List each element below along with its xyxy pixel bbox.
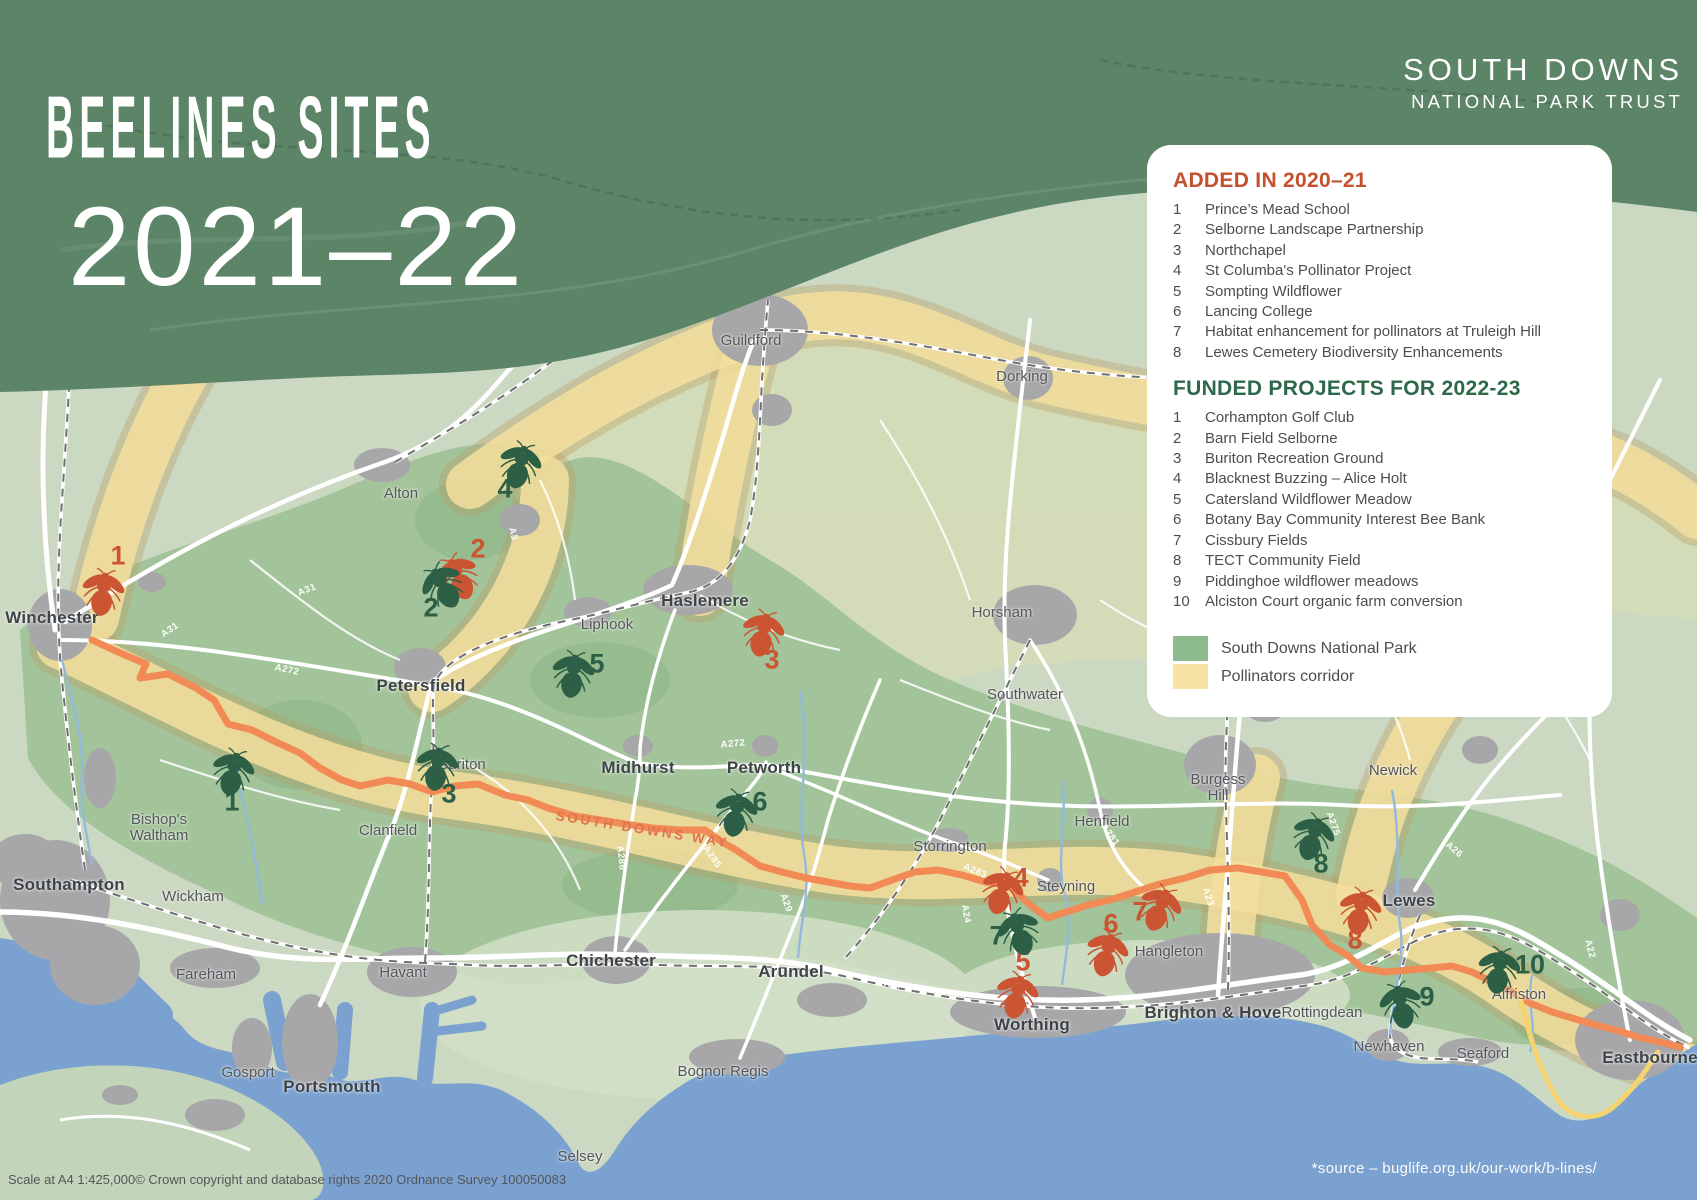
item-number: 3 [1173, 449, 1205, 469]
brand-line2: NATIONAL PARK TRUST [1403, 91, 1683, 113]
list-item: 5Sompting Wildflower [1173, 282, 1594, 302]
list-item: 3Northchapel [1173, 241, 1594, 261]
list-item: 6Lancing College [1173, 302, 1594, 322]
brand-logo: SOUTH DOWNS NATIONAL PARK TRUST [1403, 52, 1683, 113]
map-legend: South Downs National ParkPollinators cor… [1173, 636, 1594, 689]
list-item: 1Corhampton Golf Club [1173, 408, 1594, 428]
item-text: Blacknest Buzzing – Alice Holt [1205, 469, 1407, 489]
item-number: 1 [1173, 408, 1205, 428]
section-heading-funded: FUNDED PROJECTS FOR 2022-23 [1173, 377, 1594, 401]
list-item: 2Selborne Landscape Partnership [1173, 220, 1594, 240]
legend-label: Pollinators corridor [1221, 668, 1354, 686]
item-number: 6 [1173, 510, 1205, 530]
list-item: 5Catersland Wildflower Meadow [1173, 490, 1594, 510]
legend-swatch-pollinators-corridor [1173, 664, 1208, 689]
item-text: Catersland Wildflower Meadow [1205, 490, 1412, 510]
item-number: 6 [1173, 302, 1205, 322]
item-text: Botany Bay Community Interest Bee Bank [1205, 510, 1485, 530]
item-number: 4 [1173, 261, 1205, 281]
list-item: 8Lewes Cemetery Biodiversity Enhancement… [1173, 343, 1594, 363]
item-number: 7 [1173, 531, 1205, 551]
list-item: 7Habitat enhancement for pollinators at … [1173, 322, 1594, 342]
beelines-poster: WinchesterSouthamptonPortsmouthPetersfie… [0, 0, 1697, 1200]
poster-title: BEELINES SITES 2021–22 [46, 78, 664, 149]
item-text: Lancing College [1205, 302, 1313, 322]
item-text: Corhampton Golf Club [1205, 408, 1354, 428]
item-number: 2 [1173, 220, 1205, 240]
item-text: St Columba's Pollinator Project [1205, 261, 1411, 281]
item-number: 4 [1173, 469, 1205, 489]
list-item: 3Buriton Recreation Ground [1173, 449, 1594, 469]
list-item: 6Botany Bay Community Interest Bee Bank [1173, 510, 1594, 530]
list-item: 8TECT Community Field [1173, 551, 1594, 571]
legend-row-south-downs-national-park: South Downs National Park [1173, 636, 1594, 661]
item-number: 5 [1173, 282, 1205, 302]
list-item: 2Barn Field Selborne [1173, 429, 1594, 449]
list-item: 7Cissbury Fields [1173, 531, 1594, 551]
list-item: 4Blacknest Buzzing – Alice Holt [1173, 469, 1594, 489]
list-item: 4St Columba's Pollinator Project [1173, 261, 1594, 281]
item-number: 3 [1173, 241, 1205, 261]
item-number: 9 [1173, 572, 1205, 592]
item-number: 2 [1173, 429, 1205, 449]
item-text: TECT Community Field [1205, 551, 1361, 571]
legend-row-pollinators-corridor: Pollinators corridor [1173, 664, 1594, 689]
item-text: Cissbury Fields [1205, 531, 1308, 551]
legend-swatch-south-downs-national-park [1173, 636, 1208, 661]
legend-label: South Downs National Park [1221, 640, 1417, 658]
item-number: 8 [1173, 343, 1205, 363]
item-number: 10 [1173, 592, 1205, 612]
item-text: Piddinghoe wildflower meadows [1205, 572, 1418, 592]
source-note: *source – buglife.org.uk/our-work/b-line… [1312, 1160, 1597, 1177]
poster-title-line1: BEELINES SITES [46, 78, 436, 179]
item-number: 1 [1173, 200, 1205, 220]
item-number: 8 [1173, 551, 1205, 571]
list-item: 10Alciston Court organic farm conversion [1173, 592, 1594, 612]
section-heading-added: ADDED IN 2020–21 [1173, 169, 1594, 193]
brand-line1: SOUTH DOWNS [1403, 52, 1683, 88]
item-text: Prince’s Mead School [1205, 200, 1350, 220]
item-text: Sompting Wildflower [1205, 282, 1342, 302]
item-text: Barn Field Selborne [1205, 429, 1338, 449]
item-text: Alciston Court organic farm conversion [1205, 592, 1463, 612]
list-item: 9Piddinghoe wildflower meadows [1173, 572, 1594, 592]
list-item: 1Prince’s Mead School [1173, 200, 1594, 220]
scale-note: Scale at A4 1:425,000© Crown copyright a… [8, 1172, 566, 1187]
item-number: 7 [1173, 322, 1205, 342]
item-text: Buriton Recreation Ground [1205, 449, 1383, 469]
item-text: Selborne Landscape Partnership [1205, 220, 1423, 240]
panel-sections: ADDED IN 2020–211Prince’s Mead School2Se… [1173, 169, 1594, 612]
panel-section-funded: FUNDED PROJECTS FOR 2022-231Corhampton G… [1173, 377, 1594, 612]
info-panel: ADDED IN 2020–211Prince’s Mead School2Se… [1147, 145, 1612, 717]
item-text: Habitat enhancement for pollinators at T… [1205, 322, 1541, 342]
item-text: Northchapel [1205, 241, 1286, 261]
panel-section-added: ADDED IN 2020–211Prince’s Mead School2Se… [1173, 169, 1594, 363]
item-number: 5 [1173, 490, 1205, 510]
poster-title-line2: 2021–22 [68, 182, 525, 311]
item-text: Lewes Cemetery Biodiversity Enhancements [1205, 343, 1503, 363]
